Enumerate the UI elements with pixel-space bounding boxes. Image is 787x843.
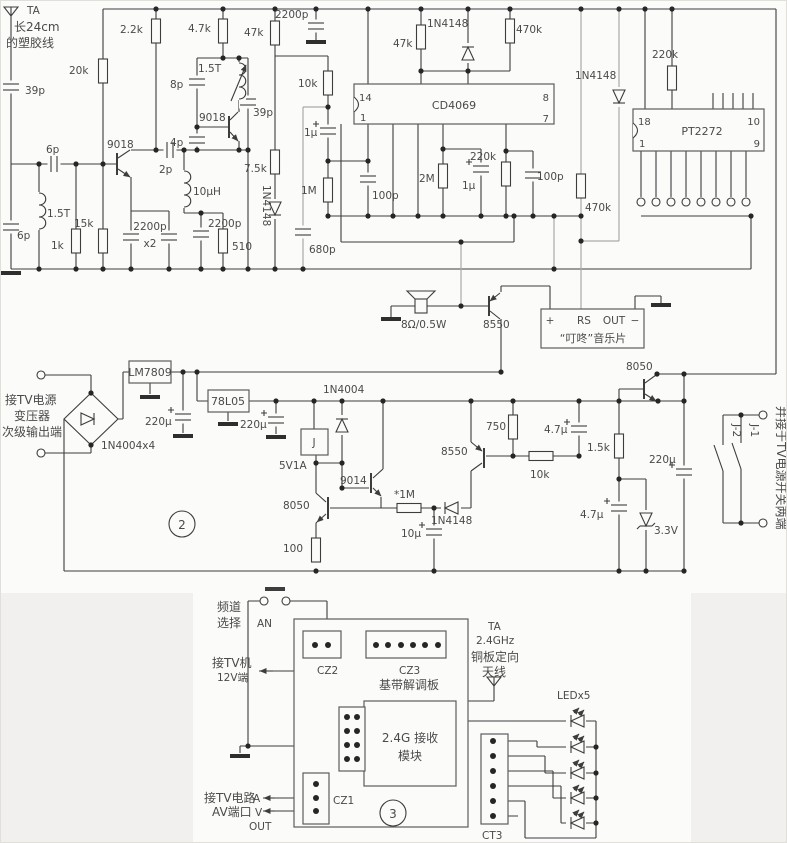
music-pin-rs: RS	[577, 315, 591, 327]
label-c1u: 1μ	[304, 127, 318, 139]
label-c39p: 39p	[25, 85, 45, 97]
label-r15kb: 1.5k	[587, 442, 611, 454]
label-r510: 510	[232, 241, 252, 253]
label-c6p-shunt: 6p	[17, 230, 31, 242]
section-2-number: 2	[178, 518, 186, 532]
label-cz3: CZ3	[399, 665, 420, 677]
label-r47kb: 47k	[244, 27, 264, 39]
label-c8p: 8p	[170, 79, 184, 91]
label-x2: x2	[144, 238, 157, 250]
label-c1ub: 1μ	[462, 180, 476, 192]
label-ledx5: LEDx5	[557, 690, 590, 702]
label-q1: 9018	[107, 139, 134, 151]
label-c2200x2: 2200p	[133, 221, 167, 233]
label-v-out: V	[255, 807, 263, 819]
label-out: OUT	[249, 821, 272, 833]
label-c100p: 100p	[372, 190, 399, 202]
label-c220b: 220μ	[240, 419, 267, 431]
label-c2200b: 2200p	[208, 218, 242, 230]
cz2-box	[303, 631, 341, 658]
label-c4p: 4p	[170, 137, 184, 149]
label-module-2: 模块	[398, 749, 422, 763]
pin-18: 18	[638, 117, 651, 128]
label-c680p: 680p	[309, 244, 336, 256]
label-side-note: 并接于TV电源开关两端	[774, 406, 787, 530]
label-relay-j: J	[311, 437, 315, 449]
music-pin-out: OUT	[603, 315, 626, 327]
label-music-chip: “叮咚”音乐片	[560, 331, 626, 345]
label-ta-3: 的塑胶线	[6, 35, 54, 50]
label-r10kb: 10k	[530, 469, 550, 481]
label-r750: 750	[486, 421, 506, 433]
label-r47kc: 47k	[393, 38, 413, 50]
label-c47b: 4.7μ	[580, 509, 604, 521]
label-d5: 1N4148	[431, 515, 472, 527]
label-r1m-star: *1M	[394, 489, 415, 501]
label-q2: 9018	[199, 112, 226, 124]
label-ic-pt2272: PT2272	[681, 125, 722, 138]
label-r100: 100	[283, 543, 303, 555]
pushbutton-an[interactable]	[260, 587, 290, 605]
label-c10u: 10μ	[401, 528, 421, 540]
label-d4: 1N4004	[323, 384, 365, 396]
label-j1: J-1	[748, 423, 760, 437]
label-c220a: 220μ	[145, 416, 172, 428]
label-q8: 8050	[626, 361, 653, 373]
label-an: AN	[257, 618, 272, 630]
pin-8: 8	[543, 93, 549, 104]
label-q7: 8550	[441, 446, 468, 458]
label-pwr-in3: 次级输出端	[2, 424, 62, 439]
label-ta-2: 长24cm	[14, 20, 60, 34]
label-l10uh: 10μH	[193, 186, 221, 198]
schematic-page: TA 长24cm 的塑胶线 39p 6p 1.5T 6p 1k 15k 20k …	[0, 0, 787, 843]
label-module-1: 2.4G 接收	[382, 730, 438, 745]
pin-9: 9	[754, 139, 760, 150]
label-r47k: 4.7k	[188, 23, 212, 35]
label-d3: 1N4148	[575, 70, 616, 82]
label-c220c: 220μ	[649, 454, 676, 466]
label-tv12-2: 12V端	[217, 671, 249, 684]
label-ct3: CT3	[482, 830, 502, 842]
led-array	[566, 708, 586, 830]
label-d2: 1N4148	[427, 18, 468, 30]
label-c6p-series: 6p	[46, 144, 60, 156]
label-q5: 8050	[283, 500, 310, 512]
music-pin-minus: −	[631, 315, 640, 327]
label-78l05: 78L05	[211, 395, 245, 408]
label-ant2-3: 铜板定向	[471, 649, 519, 664]
label-lm7809: LM7809	[128, 366, 172, 379]
label-r22k: 2.2k	[120, 24, 144, 36]
antenna-icon	[4, 7, 18, 16]
label-av-2: AV端口	[212, 805, 252, 819]
label-l15t2: 1.5T	[198, 63, 222, 75]
pin-14: 14	[359, 93, 372, 104]
label-r1k: 1k	[51, 240, 65, 252]
label-r470k: 470k	[516, 24, 543, 36]
label-r220kb: 220k	[652, 49, 679, 61]
label-ta: TA	[26, 5, 41, 17]
label-l15t: 1.5T	[47, 208, 71, 220]
label-d1: 1N4148	[260, 185, 272, 226]
label-c39pb: 39p	[253, 107, 273, 119]
label-r75k: 7.5k	[244, 163, 268, 175]
label-5v1a: 5V1A	[279, 460, 308, 472]
label-a-out: A	[253, 793, 261, 805]
label-cz1: CZ1	[333, 795, 354, 807]
label-ant2-2: 2.4GHz	[476, 635, 515, 647]
label-c100pb: 100p	[537, 171, 564, 183]
label-channel-2: 选择	[217, 616, 241, 630]
pin-1b: 1	[639, 139, 645, 150]
label-r220k: 220k	[470, 151, 497, 163]
ct3-box	[481, 734, 508, 824]
pin-7: 7	[543, 114, 549, 125]
label-q3: 8550	[483, 319, 510, 331]
label-zd33: 3.3V	[654, 525, 679, 537]
label-c2p: 2p	[159, 164, 173, 176]
label-speaker: 8Ω/0.5W	[401, 319, 447, 331]
label-r20k: 20k	[69, 65, 89, 77]
pin-1: 1	[360, 113, 366, 124]
label-r1m: 1M	[301, 185, 317, 197]
circuit-schematic: TA 长24cm 的塑胶线 39p 6p 1.5T 6p 1k 15k 20k …	[1, 1, 787, 843]
label-ant2-1: TA	[487, 621, 502, 633]
label-av-1: 接TV电路	[204, 790, 256, 805]
section-3-number: 3	[389, 807, 397, 821]
module-connector-box	[339, 707, 365, 771]
label-r470kb: 470k	[585, 202, 612, 214]
label-board: 基带解调板	[379, 678, 439, 692]
label-r2m: 2M	[419, 173, 435, 185]
label-c47a: 4.7μ	[544, 424, 568, 436]
label-channel-1: 频道	[217, 600, 241, 614]
label-pwr-in1: 接TV电源	[5, 392, 57, 407]
label-tv12-1: 接TV机	[212, 655, 252, 670]
speaker-icon	[407, 291, 435, 313]
label-q6: 9014	[340, 475, 367, 487]
label-pwr-in2: 变压器	[14, 408, 50, 423]
music-pin-plus: +	[546, 315, 555, 327]
label-ic-cd4069: CD4069	[432, 99, 476, 112]
label-bridge: 1N4004x4	[101, 440, 155, 452]
bridge-rectifier	[64, 393, 118, 445]
label-r10k: 10k	[298, 78, 318, 90]
label-r15k: 15k	[74, 218, 94, 230]
label-ant2-4: 天线	[482, 665, 506, 679]
label-c2200c: 2200p	[275, 9, 309, 21]
label-cz2: CZ2	[317, 665, 338, 677]
label-j2: J-2	[730, 423, 742, 437]
pin-10: 10	[747, 117, 760, 128]
